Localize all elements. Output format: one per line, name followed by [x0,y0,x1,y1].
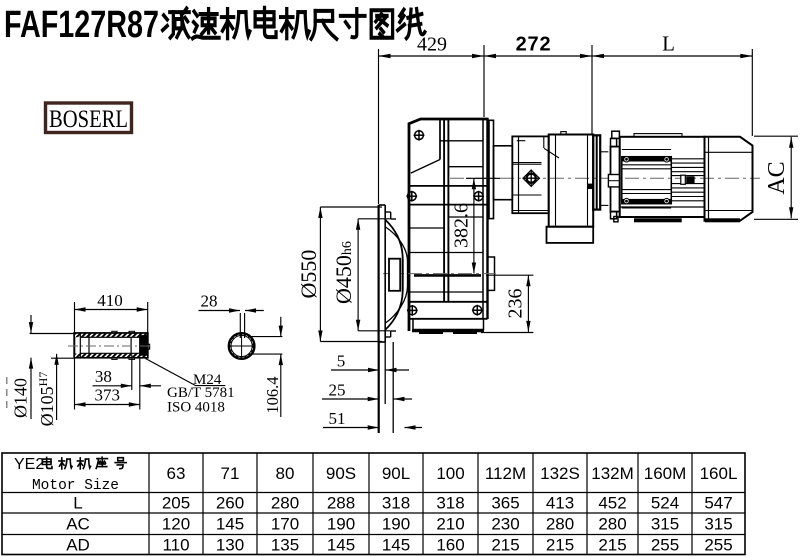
svg-text:160: 160 [436,536,464,555]
svg-text:170: 170 [271,515,299,534]
svg-text:272: 272 [516,34,552,56]
svg-text:547: 547 [704,494,732,513]
svg-text:230: 230 [491,515,519,534]
svg-text:373: 373 [95,386,121,405]
svg-text:ISO 4018: ISO 4018 [167,400,225,416]
svg-text:215: 215 [546,536,574,555]
svg-text:160L: 160L [700,464,738,483]
svg-text:Ø140: Ø140 [11,378,31,418]
svg-text:5: 5 [337,352,346,371]
svg-text:318: 318 [436,494,464,513]
svg-text:25: 25 [329,381,346,400]
svg-text:106.4: 106.4 [263,376,282,413]
svg-text:429: 429 [417,34,447,56]
svg-text:90S: 90S [326,464,356,483]
svg-text:452: 452 [598,494,626,513]
svg-text:YE2: YE2 [14,456,44,473]
svg-text:280: 280 [271,494,299,513]
svg-text:160M: 160M [644,464,687,483]
svg-text:215: 215 [491,536,519,555]
svg-text:215: 215 [598,536,626,555]
svg-text:288: 288 [327,494,355,513]
svg-text:112M: 112M [485,464,526,483]
svg-text:AD: AD [66,536,90,555]
svg-text:AC: AC [764,161,790,194]
svg-text:38: 38 [95,367,112,386]
svg-text:132M: 132M [591,464,634,483]
svg-text:524: 524 [651,494,679,513]
svg-text:145: 145 [216,515,244,534]
svg-text:AC: AC [66,515,90,534]
svg-text:110: 110 [162,536,189,555]
svg-text:Motor Size: Motor Size [32,478,119,494]
svg-text:315: 315 [704,515,732,534]
svg-text:80: 80 [276,464,295,483]
svg-text:205: 205 [162,494,190,513]
svg-text:130: 130 [216,536,244,555]
svg-text:100: 100 [436,464,464,483]
svg-text:BOSERL: BOSERL [49,106,128,133]
svg-text:90L: 90L [382,464,410,483]
svg-text:Ø550: Ø550 [296,250,321,299]
svg-text:190: 190 [382,515,410,534]
svg-text:190: 190 [327,515,355,534]
svg-text:318: 318 [382,494,410,513]
svg-text:365: 365 [491,494,519,513]
svg-text:28: 28 [201,292,218,311]
svg-text:255: 255 [704,536,732,555]
svg-text:236: 236 [505,289,527,319]
svg-text:382.6: 382.6 [451,203,473,248]
svg-text:145: 145 [327,536,355,555]
svg-text:260: 260 [216,494,244,513]
svg-text:410: 410 [97,291,123,310]
svg-text:L: L [73,494,82,513]
svg-text:413: 413 [546,494,574,513]
svg-text:315: 315 [651,515,679,534]
svg-text:51: 51 [329,409,346,428]
svg-text:210: 210 [436,515,464,534]
svg-text:255: 255 [651,536,679,555]
svg-text:145: 145 [382,536,410,555]
svg-text:L: L [662,32,675,56]
svg-text:71: 71 [221,464,240,483]
svg-text:63: 63 [167,464,186,483]
svg-text:FAF127R87: FAF127R87 [4,4,159,46]
svg-text:132S: 132S [540,464,580,483]
svg-text:280: 280 [546,515,574,534]
svg-text:135: 135 [271,536,299,555]
svg-text:280: 280 [598,515,626,534]
svg-text:120: 120 [162,515,190,534]
